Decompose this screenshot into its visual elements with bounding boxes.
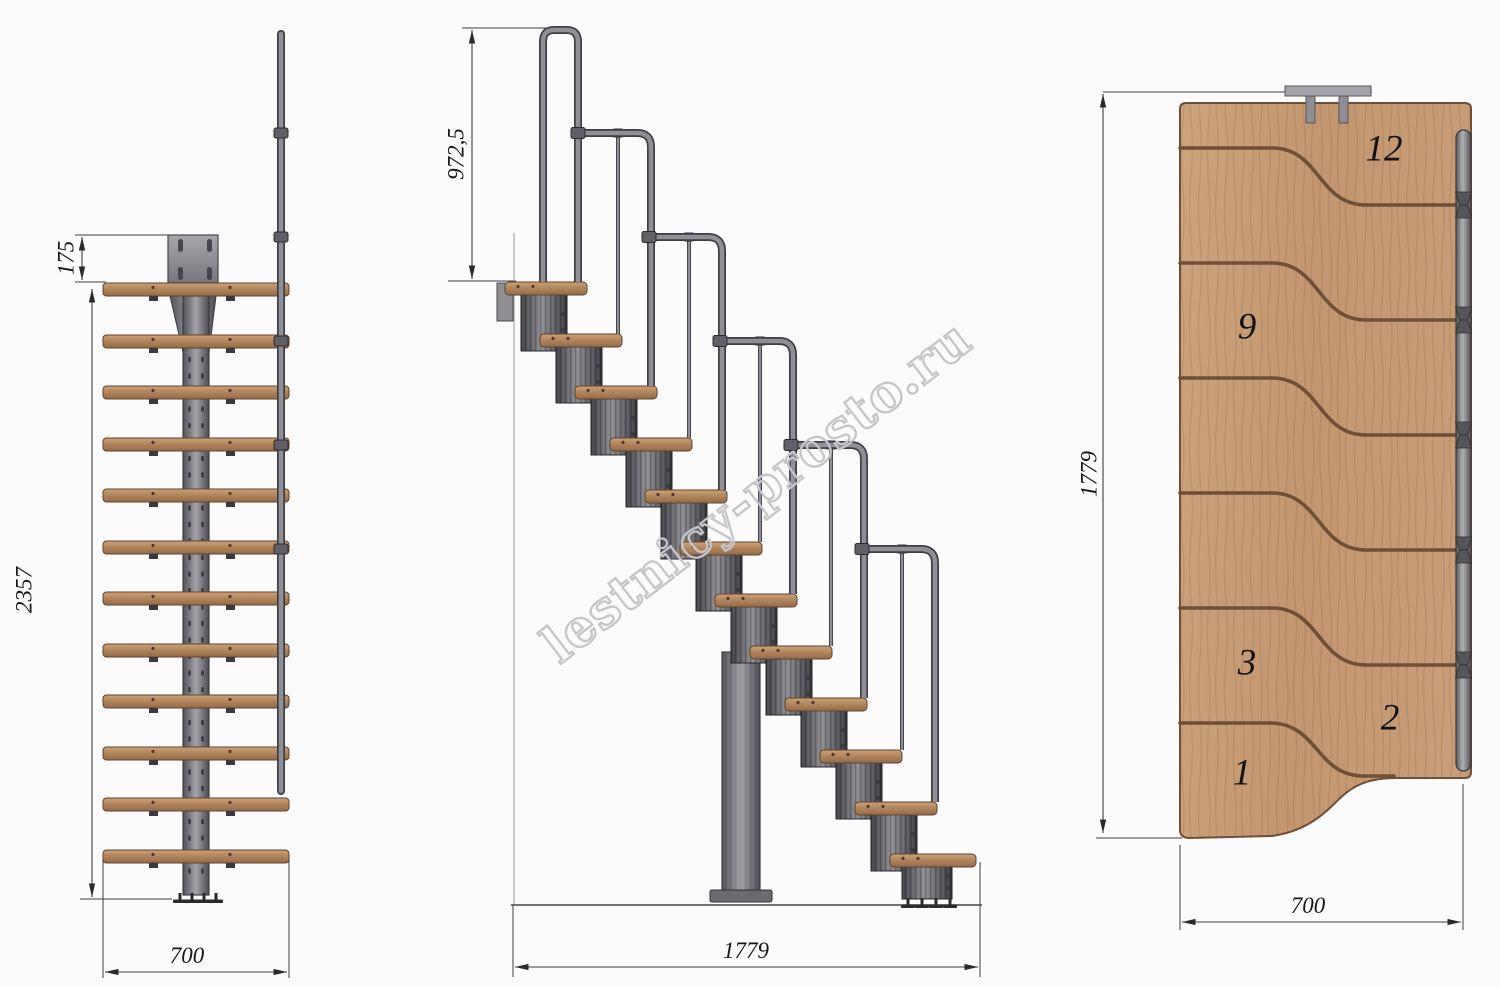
column-foot — [209, 893, 223, 903]
tread-number-3: 3 — [1237, 643, 1257, 684]
front-view: 175 2357 700 — [12, 34, 290, 978]
baluster — [684, 233, 694, 438]
baluster — [826, 441, 836, 646]
plan-dim-width-label: 700 — [1291, 893, 1326, 918]
side-dim-rail-label: 972,5 — [444, 128, 469, 180]
side-dim-length-label: 1779 — [723, 938, 770, 963]
tread-number-9: 9 — [1238, 307, 1257, 348]
baluster — [897, 545, 907, 750]
plan-view: 1779 700 12 9 3 — [1077, 86, 1472, 930]
front-structure — [103, 34, 289, 903]
side-view: 972,5 1779 — [444, 28, 983, 977]
bottom-step — [890, 854, 976, 908]
front-dim-height-label: 2357 — [12, 566, 37, 614]
wood-grain-overlay — [1180, 103, 1471, 838]
handrail-hoop — [543, 30, 578, 282]
support-column-side — [710, 652, 772, 902]
plan-dim-length-label: 1779 — [1077, 451, 1102, 498]
front-dim-width-label: 700 — [170, 943, 205, 968]
tread-number-2: 2 — [1381, 698, 1400, 739]
technical-drawing-canvas: 175 2357 700 — [0, 0, 1500, 987]
tread-number-12: 12 — [1366, 129, 1403, 170]
staircase-drawing: 175 2357 700 — [0, 0, 1500, 987]
front-dim-offset-label: 175 — [54, 241, 79, 276]
baluster — [755, 337, 765, 542]
tread-number-1: 1 — [1233, 753, 1252, 794]
handrail-post-front — [274, 34, 288, 791]
baluster — [613, 129, 623, 334]
